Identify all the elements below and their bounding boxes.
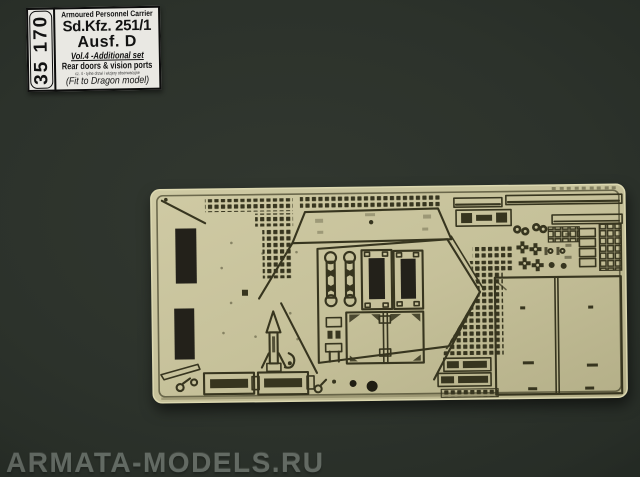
set-number: 35 170 (31, 15, 51, 85)
set-number-column: 35 170 (28, 9, 56, 89)
watermark-text: ARMATA-MODELS.RU (6, 447, 324, 477)
label-text-column: Armoured Personnel Carrier Sd.Kfz. 251/1… (55, 8, 159, 90)
label-fit-line: (Fit to Dragon model) (66, 75, 149, 87)
rivet-strip-top-center (300, 194, 441, 209)
label-vehicle-type: Armoured Personnel Carrier (61, 10, 153, 20)
product-photo: 35 170 Armoured Personnel Carrier Sd.Kfz… (0, 0, 640, 477)
product-label: 35 170 Armoured Personnel Carrier Sd.Kfz… (26, 6, 161, 92)
set-number-box: 35 170 (29, 11, 53, 89)
